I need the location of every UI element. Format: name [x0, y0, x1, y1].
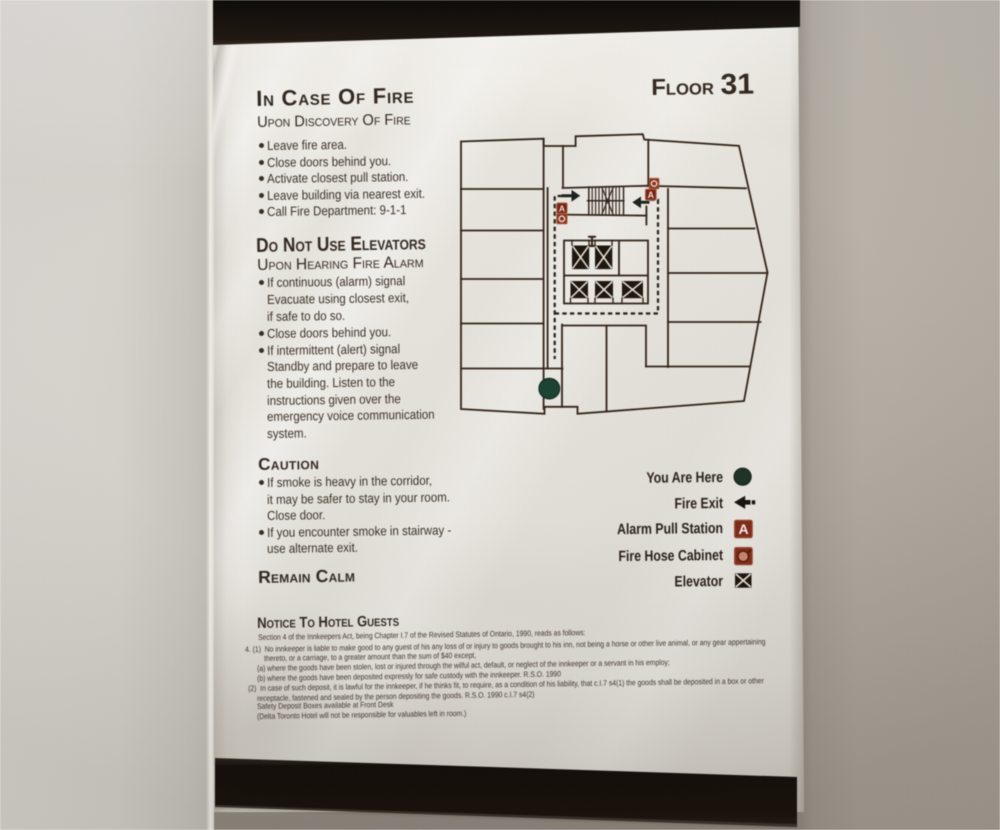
svg-text:A: A [559, 203, 565, 213]
svg-text:A: A [738, 521, 748, 537]
svg-text:A: A [648, 190, 655, 200]
